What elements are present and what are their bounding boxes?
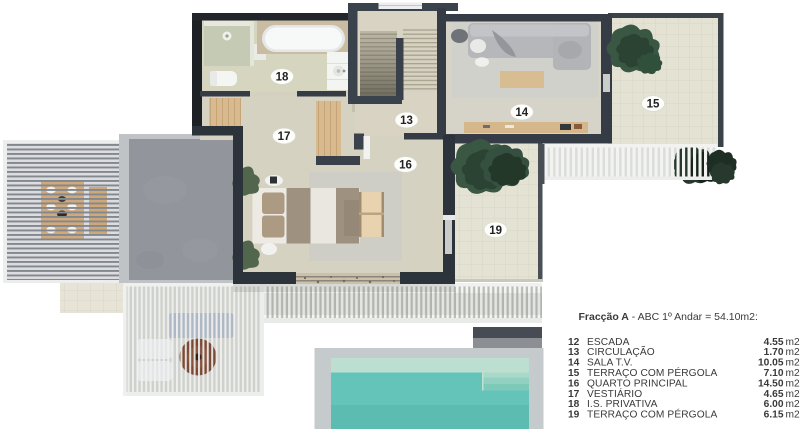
svg-text:m2: m2 [786,337,800,348]
svg-text:VESTIÁRIO: VESTIÁRIO [587,387,642,400]
svg-text:14: 14 [568,358,580,369]
svg-text:TERRAÇO COM PÉRGOLA: TERRAÇO COM PÉRGOLA [587,366,717,379]
svg-text:m2: m2 [786,358,800,369]
svg-text:14: 14 [515,107,528,119]
svg-text:10.05: 10.05 [758,358,784,369]
svg-text:12: 12 [568,337,580,348]
svg-text:m2: m2 [786,368,800,379]
svg-text:18: 18 [276,72,289,84]
svg-text:14.50: 14.50 [758,378,784,389]
svg-text:15: 15 [568,368,580,379]
svg-text:6.15: 6.15 [764,410,784,421]
svg-text:QUARTO PRINCIPAL: QUARTO PRINCIPAL [587,378,688,389]
svg-text:6.00: 6.00 [764,399,784,410]
svg-text:m2: m2 [786,347,800,358]
svg-text:ESCADA: ESCADA [587,337,630,348]
svg-text:13: 13 [568,347,580,358]
svg-text:19: 19 [568,410,580,421]
svg-text:4.65: 4.65 [764,389,784,400]
svg-text:SALA T.V.: SALA T.V. [587,358,633,369]
svg-text:18: 18 [568,399,580,410]
svg-text:m2: m2 [786,378,800,389]
svg-text:15: 15 [647,99,660,111]
svg-text:17: 17 [568,389,580,400]
svg-text:Fracção A - ABC 1º Andar = 54.: Fracção A - ABC 1º Andar = 54.10m2: [579,311,758,323]
svg-text:TERRAÇO COM PÉRGOLA: TERRAÇO COM PÉRGOLA [587,408,717,421]
svg-text:m2: m2 [786,389,800,400]
svg-text:CIRCULAÇÃO: CIRCULAÇÃO [587,345,655,358]
svg-text:17: 17 [278,131,291,143]
svg-text:16: 16 [568,378,580,389]
svg-text:7.10: 7.10 [764,368,784,379]
svg-text:4.55: 4.55 [764,337,784,348]
svg-text:13: 13 [400,115,413,127]
svg-text:1.70: 1.70 [764,347,784,358]
svg-text:m2: m2 [786,399,800,410]
svg-text:I.S. PRIVATIVA: I.S. PRIVATIVA [587,399,658,410]
svg-text:m2: m2 [786,410,800,421]
svg-text:19: 19 [489,225,502,237]
svg-text:16: 16 [399,160,412,172]
